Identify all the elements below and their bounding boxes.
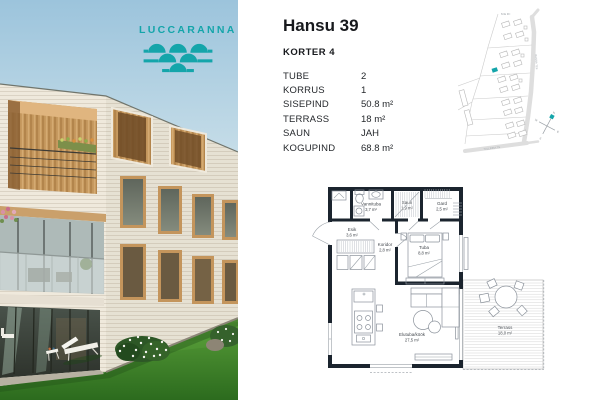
bed [401, 233, 449, 284]
room-area: 1,9 m² [401, 206, 413, 211]
brand-name: LUCCARANNA [139, 24, 225, 36]
building-photo: LUCCARANNA [0, 0, 238, 400]
room-label: Saun [402, 200, 413, 205]
spec-label: SAUN [283, 128, 361, 139]
room-area: 2,8 m² [379, 248, 391, 253]
spec-row: TERRASS 18 m² [283, 112, 453, 126]
room-area: 8,8 m² [418, 251, 430, 256]
room-label: Gard [437, 201, 448, 206]
brochure-page: LUCCARANNA Hansu [0, 0, 600, 400]
map-buildings [459, 19, 528, 139]
compass-n: N [552, 111, 556, 115]
room-area: 3,6 m² [346, 233, 358, 238]
room-area: 2,5 m² [436, 207, 448, 212]
spec-value: 18 m² [361, 114, 385, 125]
spec-label: TUBE [283, 71, 361, 82]
compass-s: S [539, 136, 543, 140]
spec-row: KOGUPIND 68.8 m² [283, 141, 453, 155]
page-title: Hansu 39 [283, 16, 359, 36]
spec-row: SAUN JAH [283, 127, 453, 141]
spec-row: TUBE 2 [283, 69, 453, 83]
sea-label: MERI [501, 12, 511, 16]
spec-value: 68.8 m² [361, 143, 393, 154]
top-balcony [8, 100, 97, 194]
room-area: 27,5 m² [405, 338, 420, 343]
spec-label: SISEPIND [283, 99, 361, 110]
room-label: Koridor [378, 242, 393, 247]
terrace: Terrass 18,0 m² [463, 279, 544, 370]
room-label: Esik [348, 227, 357, 232]
spec-value: 1 [361, 85, 366, 96]
spec-value: 50.8 m² [361, 99, 393, 110]
compass-e: E [556, 130, 560, 134]
spec-table: TUBE 2 KORRUS 1 SISEPIND 50.8 m² TERRASS… [283, 69, 453, 155]
highlighted-unit [492, 67, 498, 73]
spec-value: 2 [361, 71, 366, 82]
floor-plan: Terrass 18,0 m² [312, 177, 547, 391]
apartment-subtitle: KORTER 4 [283, 47, 335, 58]
room-label: Elutuba/köök [399, 332, 426, 337]
waves-icon [139, 43, 217, 73]
spec-row: SISEPIND 50.8 m² [283, 98, 453, 112]
site-map: MERI RANNA TEE TALLINNA TN N E S W [458, 2, 598, 160]
brand-logo: LUCCARANNA [139, 24, 225, 73]
compass-rose: N E S W [527, 105, 567, 147]
compass-w: W [534, 118, 539, 123]
spec-row: KORRUS 1 [283, 83, 453, 97]
spec-label: TERRASS [283, 114, 361, 125]
spec-value: JAH [361, 128, 379, 139]
info-panel: Hansu 39 KORTER 4 TUBE 2 KORRUS 1 SISEPI… [238, 0, 600, 400]
spec-label: KOGUPIND [283, 143, 361, 154]
room-label: Terrass [498, 325, 514, 330]
spec-label: KORRUS [283, 85, 361, 96]
room-label: Vannituba [361, 202, 381, 207]
room-area: 3,7 m² [365, 207, 377, 212]
room-area: 18,0 m² [498, 331, 513, 336]
room-label: Tuba [419, 245, 430, 250]
